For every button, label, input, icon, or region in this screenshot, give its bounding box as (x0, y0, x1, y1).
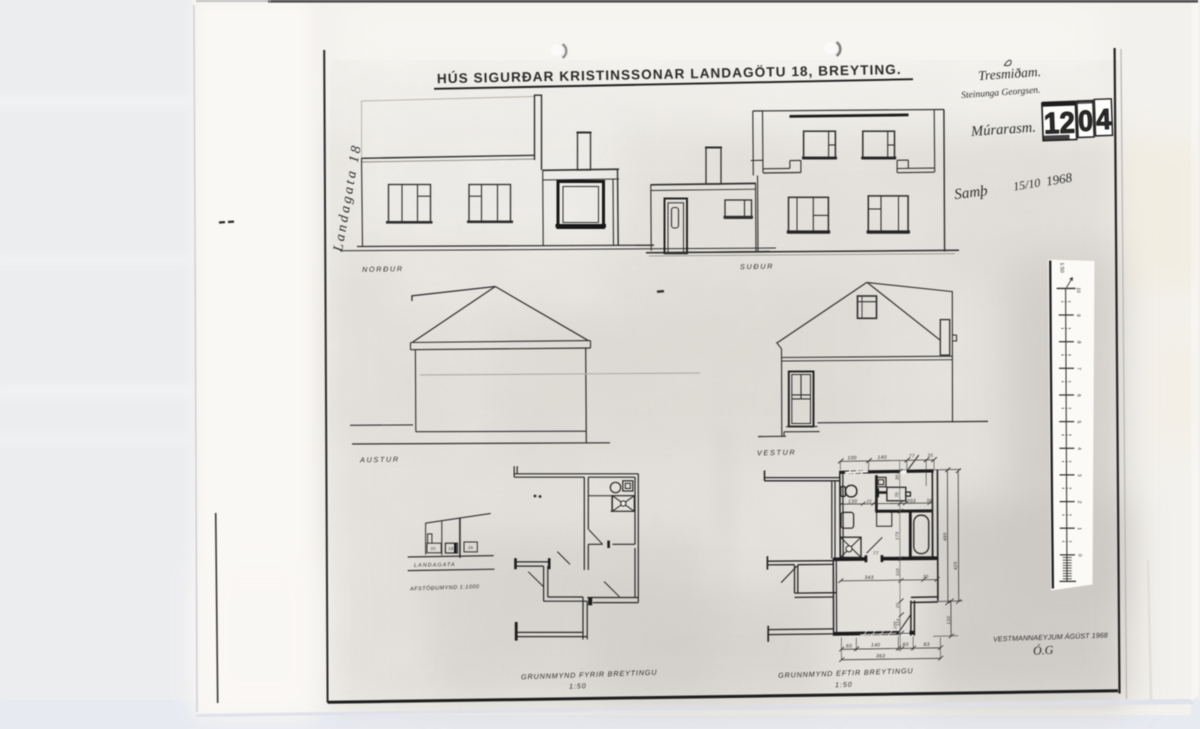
svg-text:9: 9 (1075, 314, 1081, 317)
svg-text:60: 60 (903, 642, 909, 648)
svg-text:100: 100 (847, 455, 856, 461)
svg-text:NORÐUR: NORÐUR (362, 264, 404, 274)
svg-text:12: 12 (1043, 107, 1076, 141)
svg-text:7: 7 (1076, 367, 1082, 370)
svg-text:VESTUR: VESTUR (757, 448, 797, 458)
svg-text:485: 485 (943, 532, 948, 541)
svg-text:8: 8 (1075, 341, 1081, 344)
svg-text:SUÐUR: SUÐUR (740, 262, 774, 272)
svg-text:363: 363 (876, 653, 885, 659)
svg-text:AUSTUR: AUSTUR (359, 455, 400, 465)
svg-text:343: 343 (865, 575, 874, 581)
svg-text:60: 60 (846, 643, 852, 649)
svg-text:77: 77 (909, 453, 915, 458)
svg-text:18: 18 (448, 546, 454, 551)
svg-text:1: 1 (1076, 527, 1082, 530)
svg-text:10: 10 (867, 498, 873, 503)
svg-text:30: 30 (927, 498, 933, 503)
svg-text:6: 6 (1076, 394, 1082, 397)
svg-text:1:50: 1:50 (1059, 263, 1065, 273)
svg-text:0: 0 (1076, 554, 1082, 557)
svg-text:30: 30 (923, 574, 929, 579)
svg-text:2: 2 (1076, 501, 1082, 504)
svg-text:10: 10 (1075, 287, 1081, 293)
svg-text:100: 100 (892, 621, 897, 629)
svg-text:140: 140 (871, 643, 880, 649)
svg-text:4: 4 (1096, 104, 1112, 136)
svg-text:173: 173 (895, 532, 900, 540)
svg-text:140: 140 (877, 455, 886, 461)
svg-text:20: 20 (431, 546, 437, 551)
svg-text:130: 130 (848, 499, 857, 505)
svg-text:35: 35 (927, 453, 933, 458)
svg-text:20: 20 (895, 602, 900, 609)
svg-text:130: 130 (946, 616, 951, 625)
svg-text:3: 3 (1076, 474, 1082, 477)
svg-text:LANDAGATA: LANDAGATA (414, 562, 456, 569)
svg-text:1:50: 1:50 (569, 683, 587, 691)
svg-text:83: 83 (924, 642, 930, 648)
svg-text:425: 425 (953, 561, 958, 570)
svg-text:70: 70 (895, 492, 900, 498)
svg-text:1:50: 1:50 (835, 682, 853, 690)
svg-text:203: 203 (906, 498, 916, 504)
svg-text:4: 4 (1076, 447, 1082, 450)
svg-text:Ó.G: Ó.G (1033, 643, 1054, 658)
svg-text:30: 30 (894, 474, 899, 480)
svg-text:16: 16 (468, 545, 474, 550)
svg-text:77: 77 (873, 551, 879, 556)
svg-text:110: 110 (895, 568, 900, 576)
svg-text:0: 0 (1078, 105, 1094, 137)
svg-text:5: 5 (1076, 421, 1082, 424)
